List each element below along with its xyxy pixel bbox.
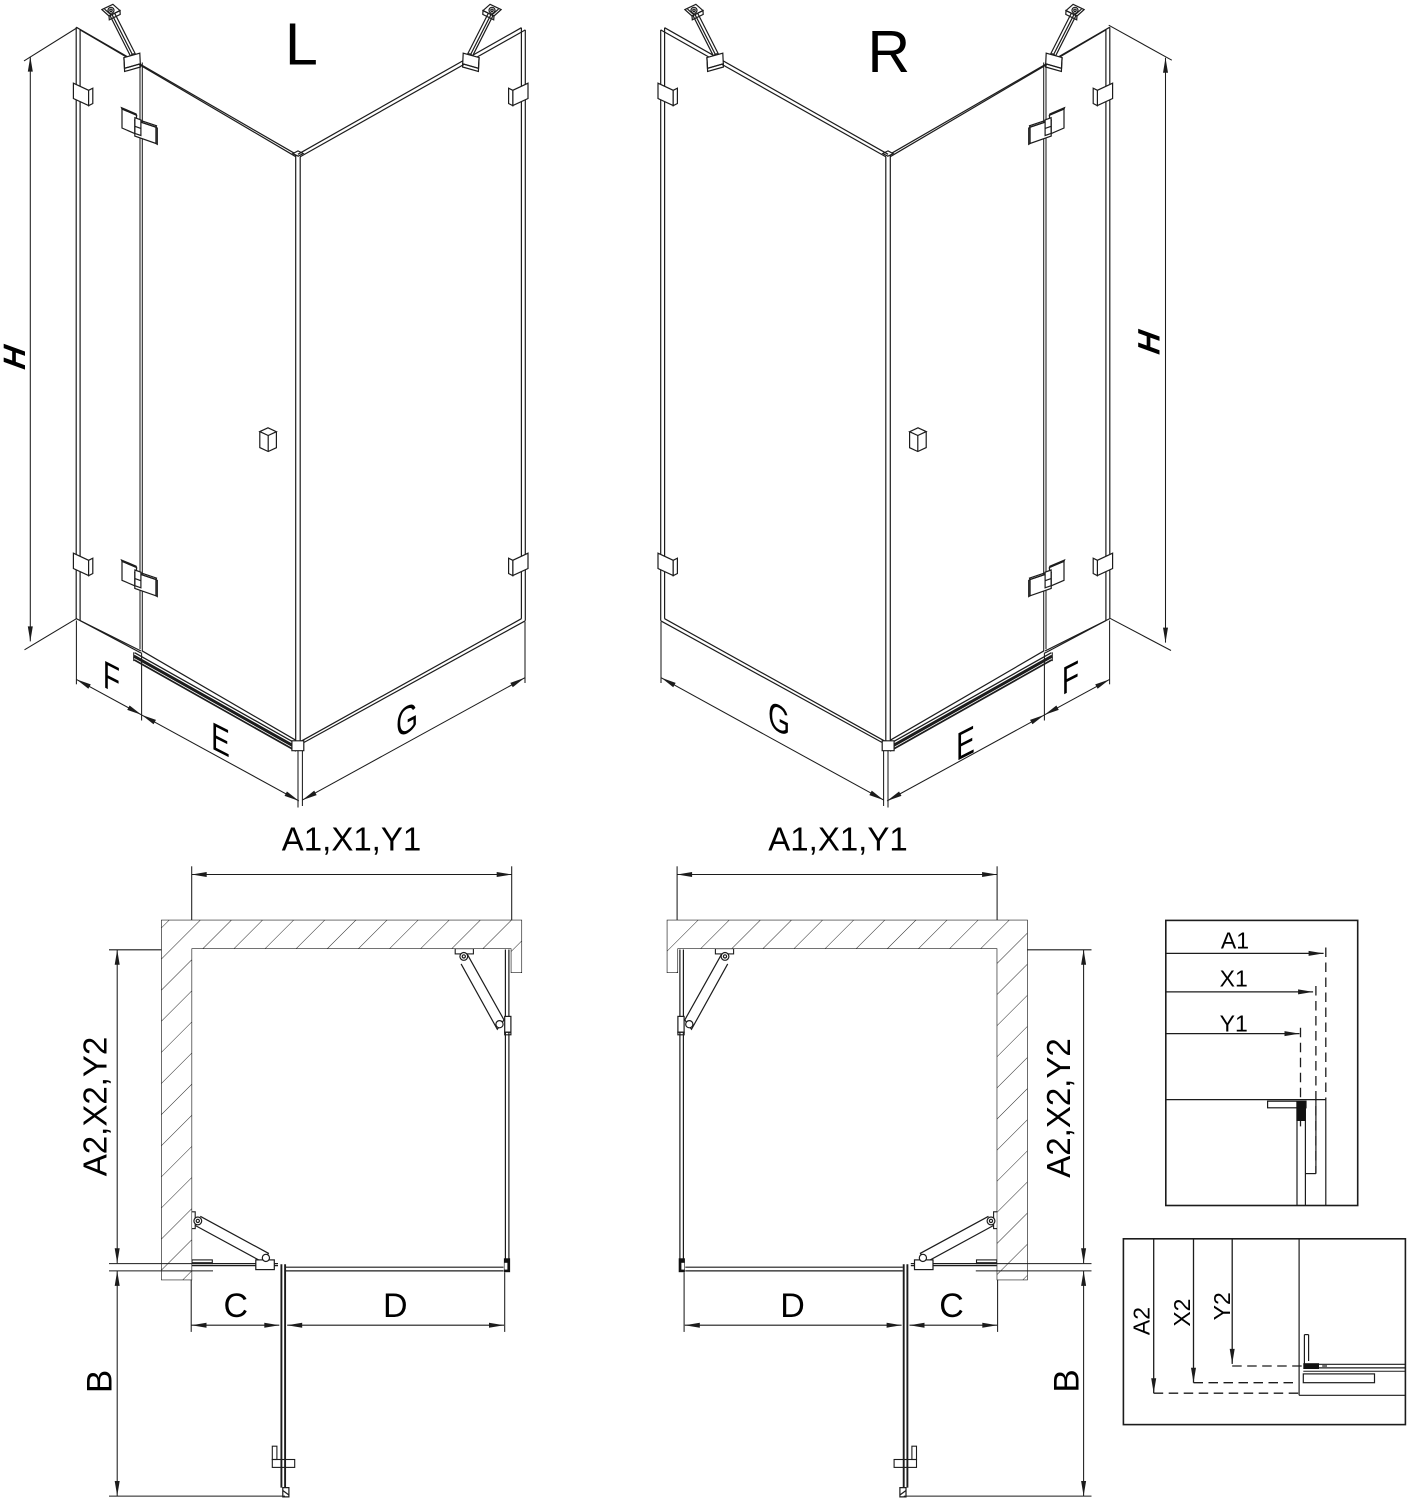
svg-text:Y2: Y2 <box>1209 1292 1235 1320</box>
svg-text:G: G <box>396 692 418 747</box>
svg-text:E: E <box>956 717 975 771</box>
svg-text:A1,X1,Y1: A1,X1,Y1 <box>768 821 907 858</box>
svg-text:X1: X1 <box>1220 966 1248 992</box>
svg-text:A1: A1 <box>1221 928 1249 954</box>
svg-text:A1,X1,Y1: A1,X1,Y1 <box>282 821 421 858</box>
svg-text:L: L <box>285 12 318 78</box>
svg-text:A2: A2 <box>1128 1307 1154 1335</box>
svg-text:D: D <box>780 1287 805 1325</box>
svg-text:B: B <box>80 1370 119 1393</box>
svg-text:H: H <box>0 339 32 374</box>
svg-text:D: D <box>383 1287 408 1325</box>
svg-text:Y1: Y1 <box>1220 1011 1248 1037</box>
svg-text:B: B <box>1047 1369 1086 1392</box>
svg-text:C: C <box>224 1287 249 1325</box>
svg-text:A2,X2,Y2: A2,X2,Y2 <box>1040 1038 1077 1177</box>
svg-text:F: F <box>1062 651 1079 704</box>
svg-text:E: E <box>211 713 230 767</box>
svg-text:H: H <box>1132 324 1167 359</box>
svg-text:R: R <box>868 19 911 85</box>
svg-text:X2: X2 <box>1169 1299 1195 1327</box>
svg-text:C: C <box>939 1287 964 1325</box>
svg-text:F: F <box>103 651 120 704</box>
svg-text:A2,X2,Y2: A2,X2,Y2 <box>77 1037 114 1176</box>
